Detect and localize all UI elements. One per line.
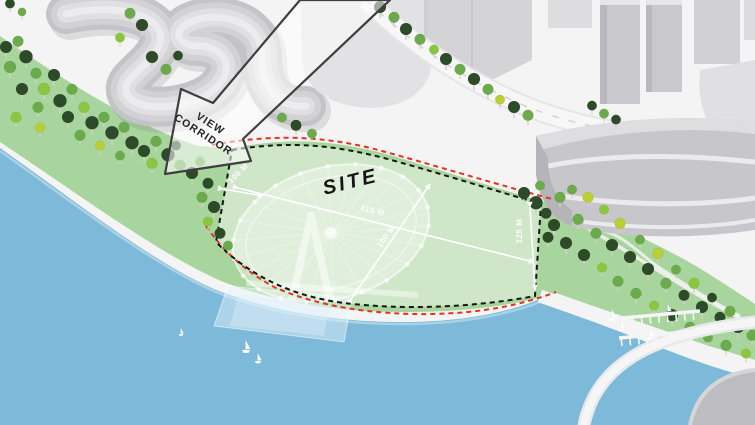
tower-d <box>744 0 755 40</box>
tower-b <box>548 0 592 28</box>
louvered-building <box>536 118 755 236</box>
tower-c <box>694 0 740 64</box>
dimension-label-right: 125 M <box>515 219 524 244</box>
tower-slab-1 <box>600 0 640 104</box>
tower-slab-2 <box>646 0 682 92</box>
site-plan-illustration: VIEW CORRIDOR 315 M 100 M 100 M 125 M SI… <box>0 0 755 425</box>
